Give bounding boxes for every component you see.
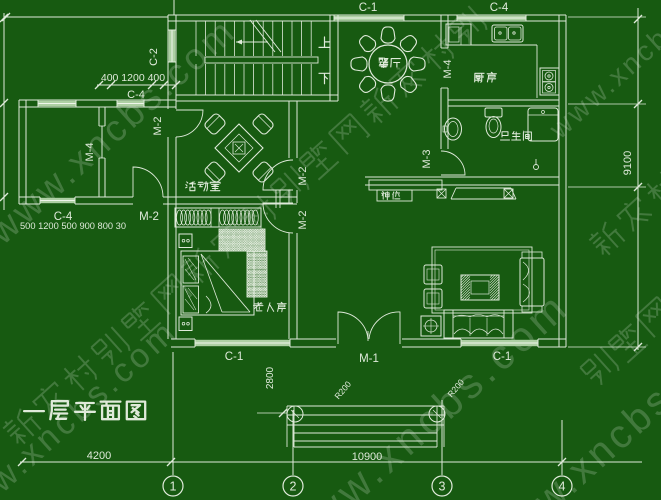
svg-text:M-2: M-2: [297, 211, 309, 230]
svg-text:C-2: C-2: [148, 48, 160, 66]
svg-text:M-4: M-4: [84, 143, 96, 162]
svg-text:M-3: M-3: [421, 150, 433, 169]
svg-text:400 1200 400: 400 1200 400: [0, 34, 1, 86]
svg-text:M-2: M-2: [139, 211, 159, 223]
svg-text:4200: 4200: [87, 450, 111, 462]
svg-text:C-4: C-4: [490, 2, 509, 14]
svg-text:1: 1: [170, 480, 177, 494]
svg-text:M-1: M-1: [359, 353, 379, 365]
svg-text:M-4: M-4: [442, 60, 454, 79]
svg-text:9100: 9100: [622, 151, 634, 175]
svg-text:10900: 10900: [352, 451, 383, 463]
svg-text:2: 2: [290, 480, 297, 494]
svg-text:M-2: M-2: [152, 117, 164, 136]
svg-text:C-4: C-4: [127, 89, 145, 101]
svg-text:C-1: C-1: [225, 351, 244, 363]
svg-text:C-1: C-1: [493, 351, 512, 363]
svg-text:500 1200 500 900 800 30: 500 1200 500 900 800 30: [20, 221, 126, 231]
svg-text:C-1: C-1: [359, 2, 378, 14]
svg-text:M-2: M-2: [297, 167, 309, 186]
svg-text:4: 4: [559, 480, 566, 494]
svg-text:3: 3: [439, 480, 446, 494]
svg-text:2800: 2800: [265, 366, 276, 389]
